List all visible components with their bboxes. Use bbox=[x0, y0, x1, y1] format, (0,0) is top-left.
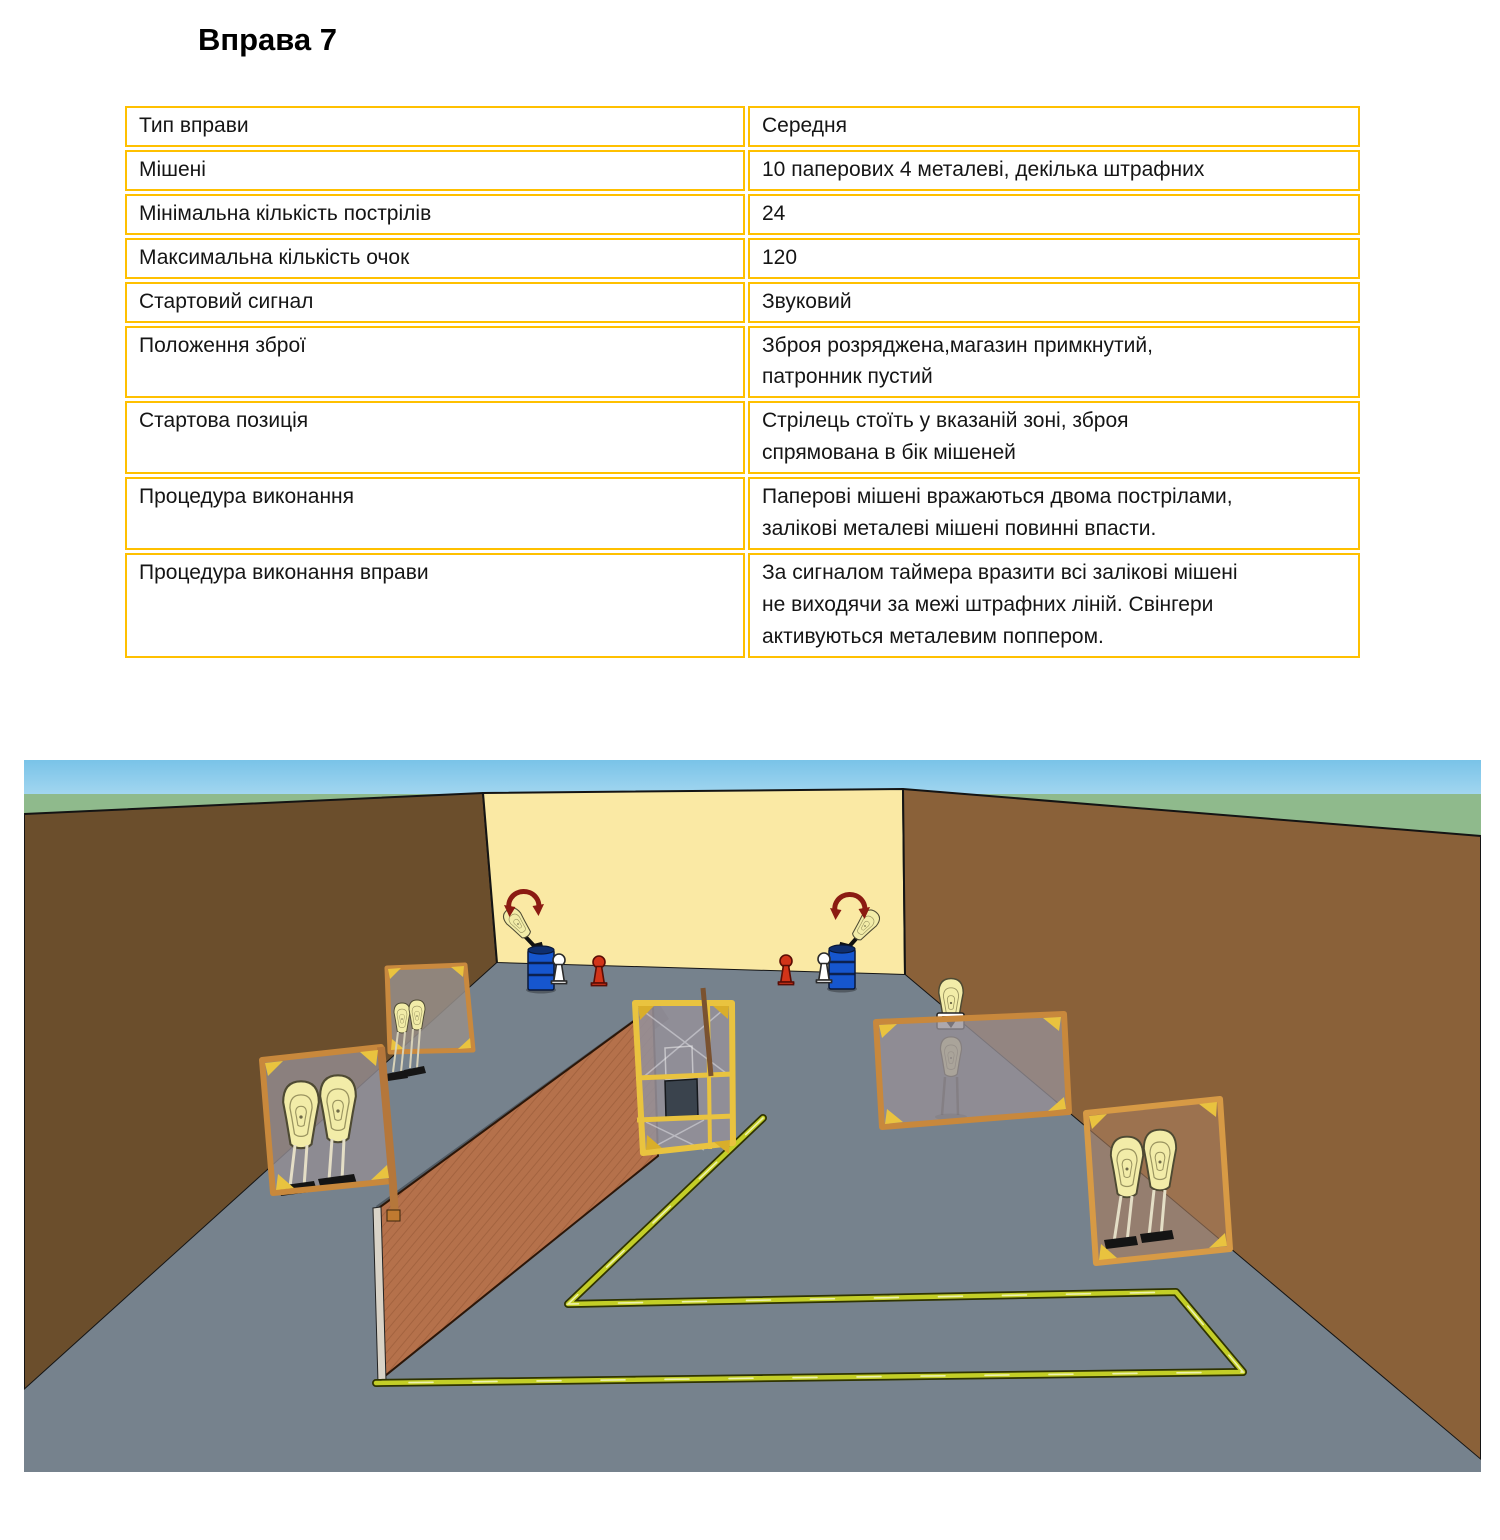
row-value: Середня bbox=[748, 106, 1360, 147]
row-value: За сигналом таймера вразити всі залікові… bbox=[748, 553, 1360, 658]
exercise-table: Тип вправиСередняМішені10 паперових 4 ме… bbox=[122, 103, 1363, 661]
center-port-wall bbox=[635, 988, 734, 1154]
row-label: Положення зброї bbox=[125, 326, 745, 399]
table-row: Мінімальна кількість пострілів24 bbox=[125, 194, 1360, 235]
table-row: Мішені10 паперових 4 металеві, декілька … bbox=[125, 150, 1360, 191]
row-label: Тип вправи bbox=[125, 106, 745, 147]
table-row: Процедура виконанняПаперові мішені вража… bbox=[125, 477, 1360, 550]
row-value: Звуковий bbox=[748, 282, 1360, 323]
row-value: Зброя розряджена,магазин примкнутий, пат… bbox=[748, 326, 1360, 399]
table-row: Стартова позиціяСтрілець стоїть у вказан… bbox=[125, 401, 1360, 474]
row-value: 10 паперових 4 металеві, декілька штрафн… bbox=[748, 150, 1360, 191]
table-row: Стартовий сигналЗвуковий bbox=[125, 282, 1360, 323]
far-right-paper-target-stand bbox=[1086, 1099, 1230, 1263]
row-label: Мішені bbox=[125, 150, 745, 191]
table-row: Положення зброїЗброя розряджена,магазин … bbox=[125, 326, 1360, 399]
exercise-table-body: Тип вправиСередняМішені10 паперових 4 ме… bbox=[125, 106, 1360, 658]
table-row: Максимальна кількість очок120 bbox=[125, 238, 1360, 279]
row-label: Процедура виконання bbox=[125, 477, 745, 550]
row-label: Стартова позиція bbox=[125, 401, 745, 474]
table-row: Процедура виконання вправиЗа сигналом та… bbox=[125, 553, 1360, 658]
row-value: Паперові мішені вражаються двома постріл… bbox=[748, 477, 1360, 550]
row-label: Максимальна кількість очок bbox=[125, 238, 745, 279]
table-row: Тип вправиСередня bbox=[125, 106, 1360, 147]
page-title: Вправа 7 bbox=[198, 22, 337, 58]
row-label: Процедура виконання вправи bbox=[125, 553, 745, 658]
row-label: Стартовий сигнал bbox=[125, 282, 745, 323]
row-value: Стрілець стоїть у вказаній зоні, зброя с… bbox=[748, 401, 1360, 474]
port-window bbox=[665, 1079, 698, 1118]
stage-diagram bbox=[24, 760, 1481, 1472]
row-label: Мінімальна кількість пострілів bbox=[125, 194, 745, 235]
row-value: 24 bbox=[748, 194, 1360, 235]
document-page: { "page": { "title": "Вправа 7" }, "tabl… bbox=[0, 0, 1500, 1540]
row-value: 120 bbox=[748, 238, 1360, 279]
